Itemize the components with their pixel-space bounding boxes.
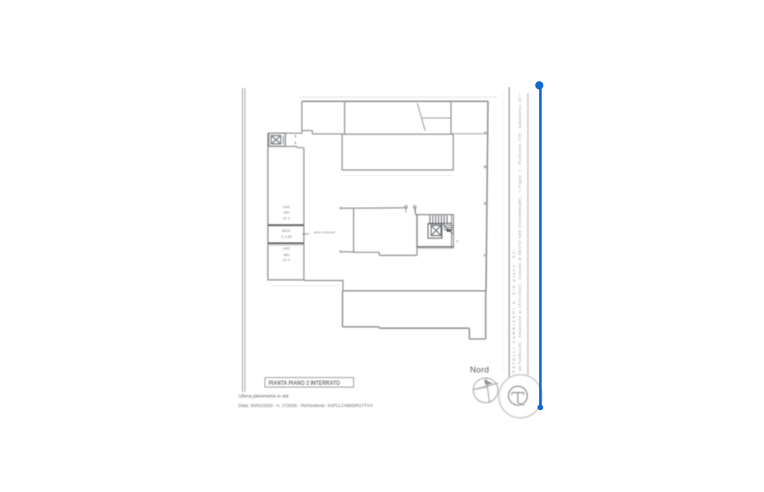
svg-text:Data: 30/01/2020 - n. 172636 -: Data: 30/01/2020 - n. 172636 - Richieden…	[238, 403, 372, 408]
svg-text:PIANTA PIANO 2 INTERRATO: PIANTA PIANO 2 INTERRATO	[269, 380, 341, 387]
svg-text:Nord: Nord	[470, 365, 489, 375]
svg-text:h. 2.40: h. 2.40	[281, 235, 291, 239]
svg-text:alta: alta	[284, 253, 290, 257]
svg-text:s1 n: s1 n	[283, 258, 290, 262]
svg-text:cant: cant	[283, 246, 290, 250]
svg-text:cant: cant	[283, 205, 290, 209]
svg-text:FRATELLI CAMBIAGHI A. 6/8 pian: FRATELLI CAMBIAGHI A. 6/8 piano: S2;	[512, 249, 516, 377]
svg-text:area comune: area comune	[314, 230, 336, 234]
svg-text:alta: alta	[284, 211, 290, 215]
svg-text:s1 n: s1 n	[283, 217, 290, 221]
svg-text:ati Fabbricati - Situazione al: ati Fabbricati - Situazione al 29/01/202…	[518, 92, 522, 371]
svg-text:Ultima planimetria in atti: Ultima planimetria in atti	[238, 393, 288, 398]
svg-text:BOX: BOX	[282, 229, 290, 233]
